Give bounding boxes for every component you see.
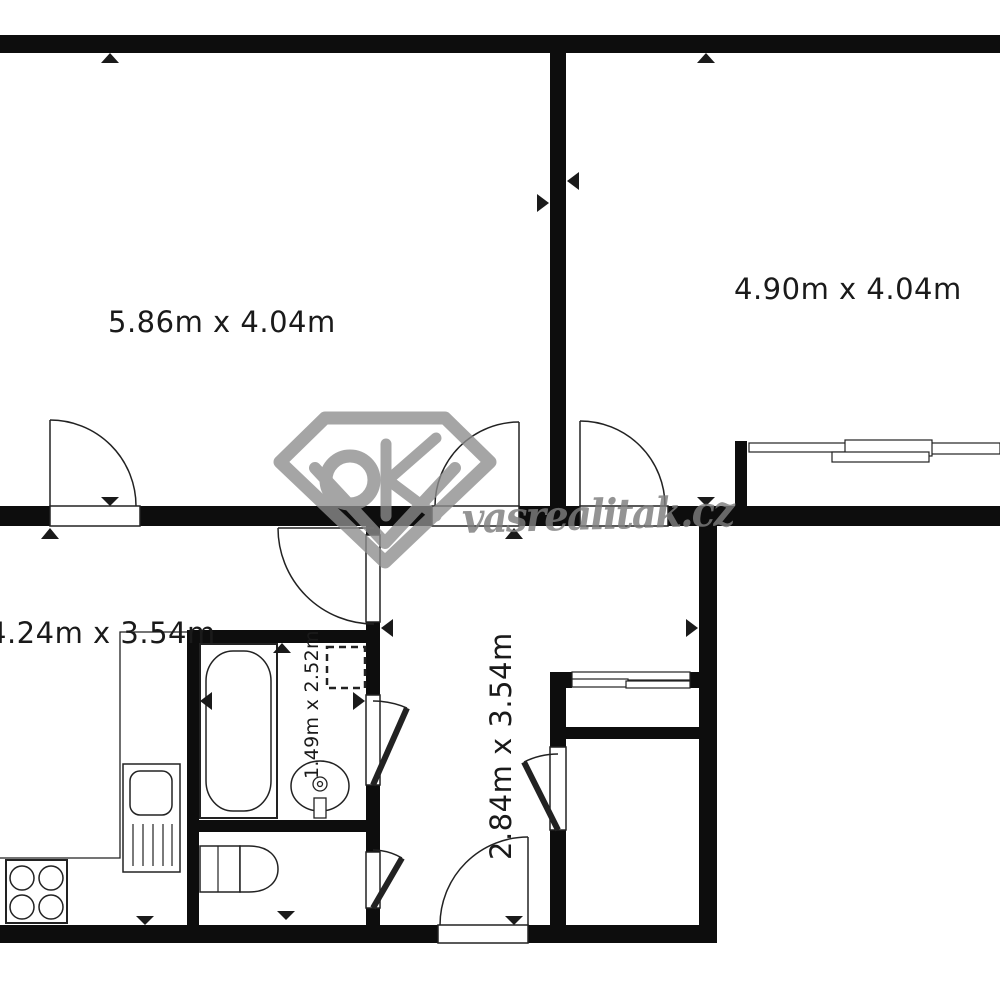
bathtub-icon xyxy=(200,644,277,818)
wall-window-stub xyxy=(735,441,747,508)
wall-hall-stub xyxy=(550,672,572,688)
measure-arrow-icon xyxy=(41,528,59,539)
wall-toilet-top xyxy=(187,820,380,832)
wall-main-seg1 xyxy=(0,506,50,526)
toilet-icon xyxy=(200,846,278,892)
door-frame-entrance xyxy=(438,925,528,943)
measure-arrow-icon xyxy=(101,497,119,506)
room-label-top-right: 4.90m x 4.04m xyxy=(734,272,962,306)
wall-wardrobe-right xyxy=(690,672,699,688)
measure-arrow-icon xyxy=(277,911,295,920)
wall-center-vertical xyxy=(550,53,566,506)
measure-arrow-icon xyxy=(101,53,119,63)
room-label-top-left: 5.86m x 4.04m xyxy=(108,305,336,339)
stove-icon xyxy=(6,860,67,923)
kitchen-sink-icon xyxy=(123,764,180,872)
measure-arrow-icon xyxy=(567,172,579,190)
room-label-bathroom: 1.49m x 2.52m xyxy=(301,643,323,779)
wall-bath-right-seg2 xyxy=(366,622,380,695)
wall-bath-top xyxy=(187,630,380,643)
measure-arrow-icon xyxy=(537,194,549,212)
wall-closet-mid xyxy=(550,727,717,739)
measure-arrow-icon xyxy=(381,619,393,637)
wall-bottom-seg2 xyxy=(528,925,717,943)
measure-arrow-icon xyxy=(353,692,365,710)
door-frame xyxy=(50,506,140,526)
measure-arrow-icon xyxy=(505,916,523,925)
room-label-hall: 2.84m x 3.54m xyxy=(484,640,518,860)
sliding-wardrobe-door-icon xyxy=(572,672,690,688)
wall-hall-seg2 xyxy=(550,830,566,925)
window-icon xyxy=(749,440,1000,462)
room-label-kitchen: 4.24m x 3.54m xyxy=(0,616,216,650)
floor-plan: 5.86m x 4.04m 4.90m x 4.04m 4.24m x 3.54… xyxy=(0,0,1000,1000)
washing-machine-icon xyxy=(327,647,365,688)
wall-bath-right-seg3 xyxy=(366,785,380,852)
wall-bath-left xyxy=(187,630,199,925)
watermark-text: vasrealitak.cz xyxy=(461,487,710,543)
measure-arrow-icon xyxy=(136,916,154,925)
wall-right xyxy=(699,506,717,943)
wall-top xyxy=(0,35,1000,53)
measure-arrow-icon xyxy=(697,53,715,63)
wall-bath-right-seg4 xyxy=(366,908,380,928)
door-frames xyxy=(50,506,668,943)
door-swing-icon xyxy=(50,420,136,506)
measure-arrow-icon xyxy=(686,619,698,637)
brand-gem-logo-icon xyxy=(280,418,490,562)
